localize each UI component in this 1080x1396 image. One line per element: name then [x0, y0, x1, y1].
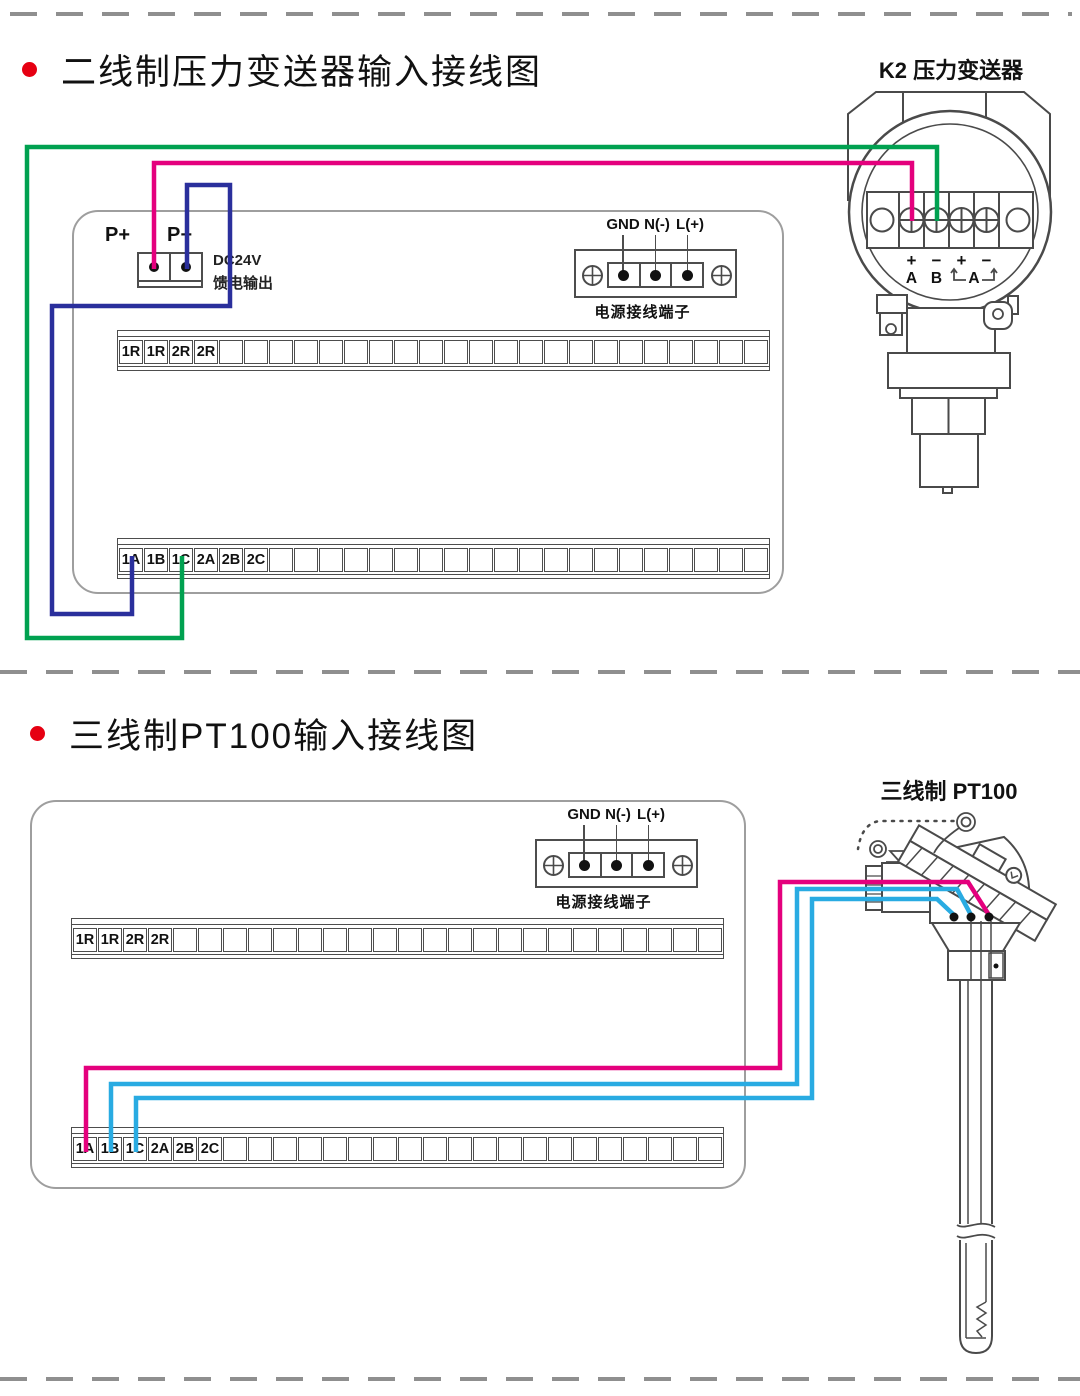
- power-terminal-box: [574, 249, 737, 298]
- terminal-cell-empty: [173, 928, 197, 952]
- pt100-stem-upper: [960, 980, 992, 1224]
- terminal-cell-empty: [523, 1137, 547, 1161]
- n-minus-label: N(-): [644, 216, 670, 233]
- pt100-terminal-dot: [985, 913, 994, 922]
- relay-terminal-strip-bottom: 1R1R2R2R: [71, 918, 724, 959]
- terminal-cell-empty: [698, 928, 722, 952]
- terminal-cell-empty: [269, 340, 293, 364]
- transmitter-face-inner: [862, 124, 1038, 300]
- terminal-cell-empty: [298, 928, 322, 952]
- pt100-stem-inner-lower: [966, 1243, 986, 1338]
- l-terminal: [672, 264, 702, 286]
- transmitter-terminal-labels: + − + − A B A: [906, 251, 992, 287]
- svg-text:+: +: [907, 251, 917, 270]
- pt100-cap-swing-path: [858, 821, 962, 849]
- terminal-cell-empty: [719, 340, 743, 364]
- terminal-cell-empty: [569, 548, 593, 572]
- transmitter-bracket-hole: [993, 309, 1003, 319]
- dc24v-note: DC24V 馈电输出: [213, 249, 273, 295]
- terminal-cell-empty: [744, 548, 768, 572]
- terminal-cell-empty: [294, 340, 318, 364]
- transmitter-body-block: [888, 353, 1010, 388]
- terminal-cell-empty: [594, 548, 618, 572]
- terminal-cell-empty: [544, 340, 568, 364]
- terminal-cell-empty: [419, 548, 443, 572]
- terminal-cell-empty: [298, 1137, 322, 1161]
- dc24v-note-line2: 馈电输出: [213, 272, 273, 295]
- dc24v-feed-terminal-block: [137, 252, 203, 288]
- gnd-label: GND: [567, 806, 600, 823]
- terminal-cell-empty: [744, 340, 768, 364]
- pt100-funnel: [932, 923, 1020, 951]
- transmitter-bracket-tab: [1008, 296, 1018, 314]
- terminal-cell-empty: [519, 340, 543, 364]
- terminal-cell-1R: 1R: [119, 340, 143, 364]
- terminal-cell-empty: [619, 340, 643, 364]
- terminal-cell-1A: 1A: [119, 548, 143, 572]
- transmitter-screw-terminals: [900, 208, 999, 232]
- terminal-cell-2R: 2R: [148, 928, 172, 952]
- terminal-cell-empty: [544, 548, 568, 572]
- terminal-cell-empty: [398, 928, 422, 952]
- terminal-cell-empty: [219, 340, 243, 364]
- terminal-cell-empty: [473, 928, 497, 952]
- screw-icon: [543, 855, 564, 876]
- terminal-cell-1A: 1A: [73, 1137, 97, 1161]
- terminal-cell-empty: [398, 1137, 422, 1161]
- pt100-internal-wires: [971, 921, 991, 980]
- terminal-dot: [611, 860, 622, 871]
- terminal-cell-empty: [548, 1137, 572, 1161]
- pt100-sensor-illustration: 三线制 PT100: [858, 779, 1063, 1353]
- terminal-cell-empty: [344, 340, 368, 364]
- terminal-cell-empty: [319, 548, 343, 572]
- pt100-stem-inner-upper: [968, 980, 981, 1224]
- dc24v-note-line1: DC24V: [213, 249, 273, 272]
- terminal-cell-empty: [444, 548, 468, 572]
- terminal-cell-1R: 1R: [73, 928, 97, 952]
- pt100-lever-screw: [934, 813, 975, 853]
- gnd-terminal: [609, 264, 641, 286]
- section1-title-text: 二线制压力变送器输入接线图: [61, 44, 542, 95]
- terminal-cell-empty: [694, 340, 718, 364]
- terminal-cell-empty: [623, 928, 647, 952]
- terminal-cell-empty: [448, 928, 472, 952]
- terminal-cell-empty: [319, 340, 343, 364]
- pt100-cap-open: [898, 813, 1063, 940]
- terminal-cell-1R: 1R: [144, 340, 168, 364]
- transmitter-ear-hole: [886, 324, 896, 334]
- terminal-cell-empty: [569, 340, 593, 364]
- gnd-terminal: [570, 854, 602, 876]
- input-terminal-strip-bottom: 1A1B1C2A2B2C: [71, 1127, 724, 1168]
- terminal-cell-empty: [598, 1137, 622, 1161]
- terminal-cell-empty: [619, 548, 643, 572]
- pt100-stem-break: [957, 1224, 995, 1238]
- strip-rail: [72, 954, 723, 958]
- terminal-cell-empty: [323, 1137, 347, 1161]
- terminal-cell-2B: 2B: [173, 1137, 197, 1161]
- terminal-dot: [618, 270, 629, 281]
- power-cells: [607, 262, 704, 288]
- terminal-dot: [149, 262, 159, 272]
- terminal-cell-empty: [394, 548, 418, 572]
- terminal-dot: [682, 270, 693, 281]
- terminal-cell-empty: [644, 340, 668, 364]
- terminal-cell-empty: [373, 928, 397, 952]
- terminal-cell-empty: [223, 928, 247, 952]
- pressure-transmitter-illustration: K2 压力变送器: [848, 58, 1051, 493]
- terminal-cell-empty: [294, 548, 318, 572]
- strip-rail: [72, 1163, 723, 1167]
- transmitter-flange: [900, 388, 997, 398]
- strip-rail: [118, 366, 769, 370]
- pt100-head-neck: [882, 863, 932, 912]
- screw-icon: [711, 265, 732, 286]
- terminal-cell-1C: 1C: [169, 548, 193, 572]
- pt100-terminal-dot: [950, 913, 959, 922]
- terminal-cell-empty: [673, 928, 697, 952]
- transmitter-process-connector: [920, 434, 978, 487]
- terminal-cell-empty: [248, 1137, 272, 1161]
- terminal-cell-empty: [719, 548, 743, 572]
- transmitter-bracket: [984, 302, 1012, 329]
- terminal-cell-empty: [494, 548, 518, 572]
- terminal-cell-empty: [444, 340, 468, 364]
- terminal-cell-1C: 1C: [123, 1137, 147, 1161]
- wiring-diagram-page: 二线制压力变送器输入接线图 三线制PT100输入接线图 K2 压力变送器: [0, 0, 1080, 1396]
- section2-title-text: 三线制PT100输入接线图: [69, 708, 478, 759]
- terminal-cell-2B: 2B: [219, 548, 243, 572]
- input-terminal-strip-top: 1A1B1C2A2B2C: [117, 538, 770, 579]
- screw-icon: [582, 265, 603, 286]
- transmitter-ear-left-lower: [880, 313, 902, 335]
- pt100-hinge-screw: [870, 841, 886, 857]
- terminal-cell-empty: [698, 1137, 722, 1161]
- terminal-cell-2C: 2C: [198, 1137, 222, 1161]
- power-cells: [568, 852, 665, 878]
- terminal-cell-empty: [694, 548, 718, 572]
- terminal-cell-empty: [594, 340, 618, 364]
- terminal-cell-empty: [623, 1137, 647, 1161]
- transmitter-ear-left: [877, 295, 907, 313]
- terminal-cell-empty: [498, 1137, 522, 1161]
- terminal-cell-empty: [248, 928, 272, 952]
- terminal-cell-empty: [448, 1137, 472, 1161]
- terminal-cell-empty: [269, 548, 293, 572]
- p-plus-label: P+: [105, 224, 130, 247]
- pt100-clamp-screw: [994, 964, 999, 969]
- section2-title: 三线制PT100输入接线图: [30, 708, 478, 759]
- svg-text:−: −: [932, 251, 942, 270]
- power-terminal-caption: 电源接线端子: [522, 891, 685, 912]
- terminal-cell-empty: [469, 548, 493, 572]
- section1-title: 二线制压力变送器输入接线图: [22, 44, 542, 95]
- terminal-cell-empty: [648, 1137, 672, 1161]
- terminal-dot: [579, 860, 590, 871]
- terminal-cell-empty: [198, 928, 222, 952]
- pt100-resistor-element: [977, 1302, 986, 1337]
- terminal-cell-empty: [573, 1137, 597, 1161]
- pt100-stem-lower: [960, 1240, 992, 1353]
- pt100-hex-nipple: [866, 866, 882, 910]
- terminal-dot: [650, 270, 661, 281]
- terminal-cell-2R: 2R: [169, 340, 193, 364]
- terminal-cell-empty: [473, 1137, 497, 1161]
- terminal-cell-empty: [519, 548, 543, 572]
- terminal-cell-empty: [369, 548, 393, 572]
- terminal-cell-empty: [323, 928, 347, 952]
- terminal-cell-1B: 1B: [98, 1137, 122, 1161]
- pt100-clamp-wedge: [886, 851, 912, 862]
- transmitter-title: K2 压力变送器: [879, 58, 1024, 83]
- terminal-cell-empty: [673, 1137, 697, 1161]
- terminal-cell-1R: 1R: [98, 928, 122, 952]
- screw-icon: [672, 855, 693, 876]
- pt100-terminal-dot: [967, 913, 976, 922]
- terminal-cell-1B: 1B: [144, 548, 168, 572]
- terminal-cell-empty: [348, 928, 372, 952]
- divider-line-middle: [0, 670, 1080, 674]
- terminal-cell-empty: [273, 1137, 297, 1161]
- svg-text:A: A: [968, 270, 979, 287]
- terminal-cell-empty: [419, 340, 443, 364]
- p-minus-label: P−: [167, 224, 192, 247]
- terminal-cell-empty: [498, 928, 522, 952]
- transmitter-hole-left: [871, 209, 894, 232]
- p-minus-terminal: [171, 254, 201, 280]
- transmitter-face-outer: [849, 111, 1051, 313]
- terminal-cell-empty: [523, 928, 547, 952]
- transmitter-tip: [943, 487, 952, 493]
- terminal-cell-empty: [344, 548, 368, 572]
- divider-line-bottom: [0, 1377, 1080, 1381]
- pt100-clamp-block: [948, 951, 1005, 980]
- svg-text:+: +: [957, 251, 967, 270]
- bullet-icon: [22, 62, 37, 77]
- l-plus-label: L(+): [676, 216, 704, 233]
- terminal-cell-empty: [373, 1137, 397, 1161]
- strip-rail: [118, 574, 769, 578]
- terminal-cell-2A: 2A: [148, 1137, 172, 1161]
- terminal-cell-empty: [644, 548, 668, 572]
- terminal-cell-2C: 2C: [244, 548, 268, 572]
- terminal-cell-2R: 2R: [123, 928, 147, 952]
- terminal-cell-2R: 2R: [194, 340, 218, 364]
- terminal-cell-empty: [598, 928, 622, 952]
- terminal-cell-empty: [423, 928, 447, 952]
- terminal-dot: [181, 262, 191, 272]
- terminal-cell-empty: [669, 340, 693, 364]
- terminal-dot: [643, 860, 654, 871]
- n-terminal: [602, 854, 634, 876]
- terminal-cell-empty: [648, 928, 672, 952]
- l-plus-label: L(+): [637, 806, 665, 823]
- pt100-clamp-screw-box: [989, 953, 1003, 978]
- terminal-cell-empty: [669, 548, 693, 572]
- transmitter-cap: [848, 92, 1050, 200]
- terminal-cell-empty: [394, 340, 418, 364]
- terminal-cell-empty: [494, 340, 518, 364]
- transmitter-terminal-dividers: [899, 192, 999, 248]
- power-terminal-box: [535, 839, 698, 888]
- divider-line-top: [10, 12, 1072, 16]
- terminal-cell-empty: [423, 1137, 447, 1161]
- svg-text:−: −: [982, 251, 992, 270]
- n-minus-label: N(-): [605, 806, 631, 823]
- transmitter-bracket-mark: [951, 269, 997, 280]
- terminal-cell-empty: [548, 928, 572, 952]
- terminal-cell-2A: 2A: [194, 548, 218, 572]
- p-plus-terminal: [139, 254, 171, 280]
- terminal-cell-empty: [223, 1137, 247, 1161]
- bullet-icon: [30, 726, 45, 741]
- pt100-title: 三线制 PT100: [881, 779, 1018, 804]
- terminal-cell-empty: [573, 928, 597, 952]
- pt100-head-body: [930, 837, 1029, 923]
- n-terminal: [641, 264, 673, 286]
- gnd-label: GND: [606, 216, 639, 233]
- terminal-cell-empty: [273, 928, 297, 952]
- transmitter-terminal-bar: [867, 192, 1033, 248]
- terminal-cell-empty: [244, 340, 268, 364]
- transmitter-hole-right: [1007, 209, 1030, 232]
- transmitter-cap-lines: [903, 92, 986, 200]
- terminal-cell-empty: [369, 340, 393, 364]
- svg-text:A: A: [906, 270, 917, 287]
- relay-terminal-strip-top: 1R1R2R2R: [117, 330, 770, 371]
- power-terminal-caption: 电源接线端子: [561, 301, 724, 322]
- transmitter-hex-nut: [912, 398, 985, 434]
- svg-text:B: B: [931, 270, 942, 287]
- terminal-cell-empty: [348, 1137, 372, 1161]
- terminal-cell-empty: [469, 340, 493, 364]
- l-terminal: [633, 854, 663, 876]
- transmitter-neck: [907, 308, 995, 353]
- pt100-hex-facets: [866, 876, 882, 902]
